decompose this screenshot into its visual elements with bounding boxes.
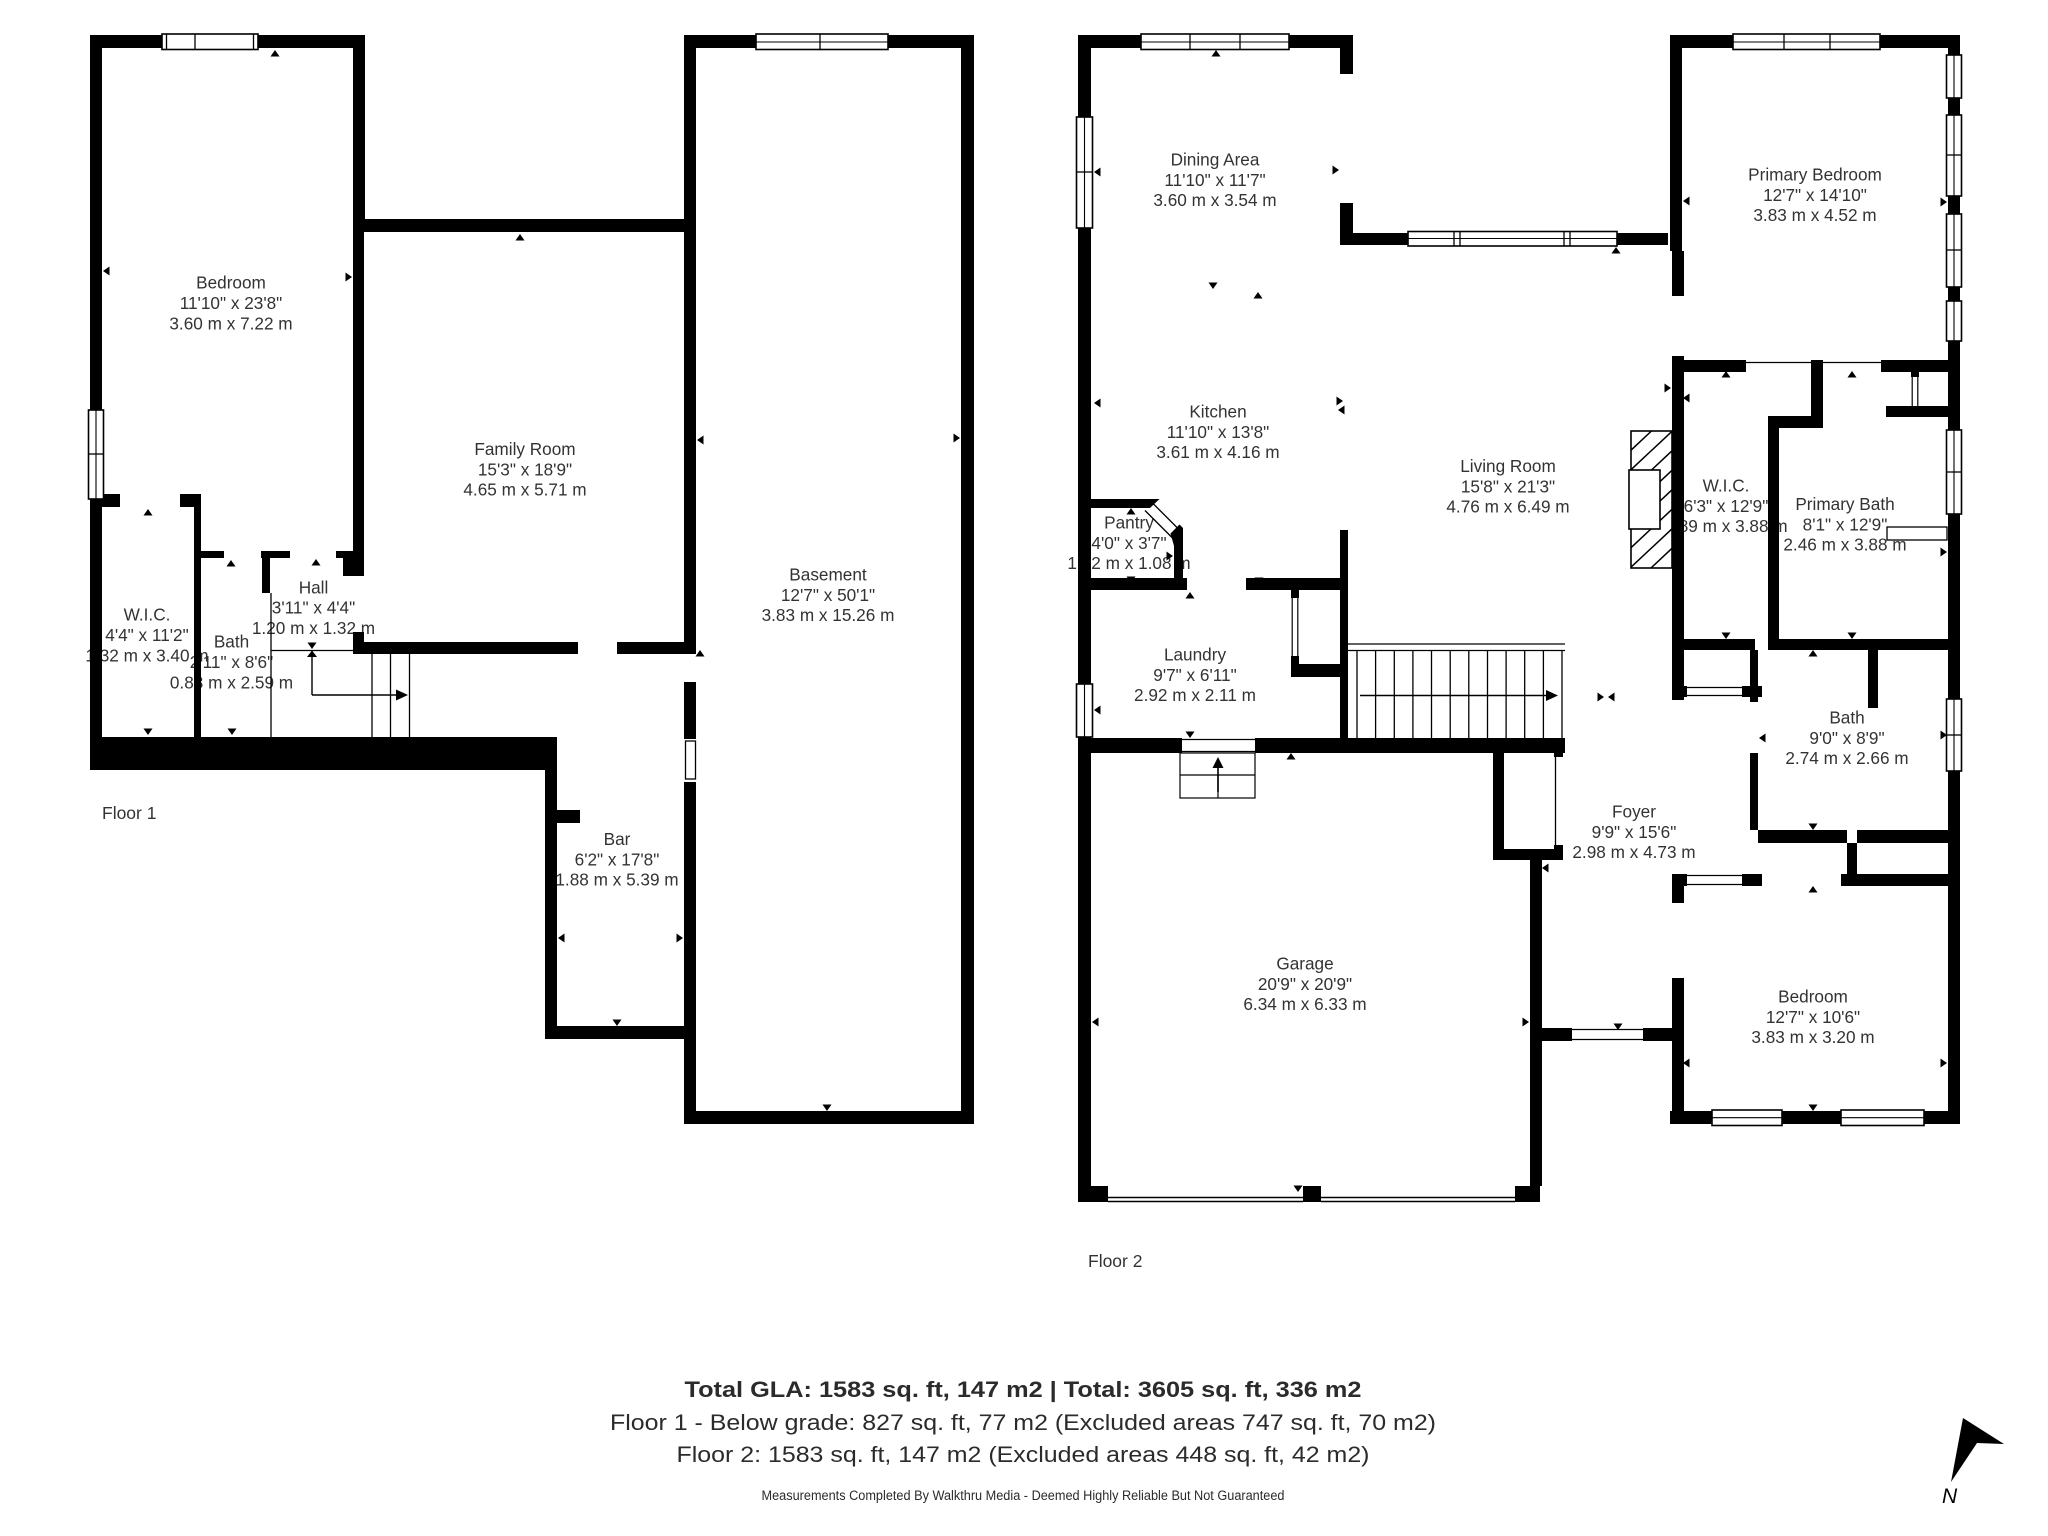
svg-text:Primary Bath: Primary Bath: [1795, 494, 1894, 514]
svg-text:Foyer: Foyer: [1612, 802, 1656, 822]
svg-text:Total GLA: 1583 sq. ft, 147 m2: Total GLA: 1583 sq. ft, 147 m2 | Total: …: [685, 1377, 1362, 1402]
svg-text:2.98 m x 4.73 m: 2.98 m x 4.73 m: [1572, 842, 1695, 862]
svg-text:2.74 m x 2.66 m: 2.74 m x 2.66 m: [1785, 748, 1908, 768]
svg-text:0.83 m x 2.59 m: 0.83 m x 2.59 m: [170, 672, 293, 692]
svg-text:Bedroom: Bedroom: [196, 273, 266, 293]
svg-text:Bath: Bath: [1829, 708, 1864, 728]
svg-text:2'11" x 8'6": 2'11" x 8'6": [190, 652, 273, 672]
svg-text:11'10" x 13'8": 11'10" x 13'8": [1167, 422, 1270, 442]
svg-text:Primary Bedroom: Primary Bedroom: [1748, 165, 1882, 185]
svg-text:3.83 m x 15.26 m: 3.83 m x 15.26 m: [762, 605, 895, 625]
svg-text:3.83 m x 3.20 m: 3.83 m x 3.20 m: [1751, 1027, 1874, 1047]
svg-text:W.I.C.: W.I.C.: [124, 605, 171, 625]
svg-text:3.60 m x 3.54 m: 3.60 m x 3.54 m: [1153, 190, 1276, 210]
svg-text:Basement: Basement: [789, 565, 867, 585]
svg-text:Bar: Bar: [604, 829, 631, 849]
svg-text:3.61 m x 4.16 m: 3.61 m x 4.16 m: [1156, 442, 1279, 462]
svg-text:1.88 m x 5.39 m: 1.88 m x 5.39 m: [555, 870, 678, 890]
svg-text:12'7" x 14'10": 12'7" x 14'10": [1763, 185, 1867, 205]
svg-text:Floor 2: Floor 2: [1088, 1251, 1142, 1271]
svg-text:11'10" x 23'8": 11'10" x 23'8": [180, 293, 283, 313]
svg-text:9'9" x 15'6": 9'9" x 15'6": [1592, 822, 1677, 842]
svg-text:6'2" x 17'8": 6'2" x 17'8": [575, 849, 660, 869]
svg-text:4.76 m x 6.49 m: 4.76 m x 6.49 m: [1446, 497, 1569, 517]
svg-text:9'7" x 6'11": 9'7" x 6'11": [1153, 665, 1236, 685]
svg-text:3'11" x 4'4": 3'11" x 4'4": [272, 598, 355, 618]
svg-text:Kitchen: Kitchen: [1189, 402, 1246, 422]
svg-text:Bedroom: Bedroom: [1778, 987, 1848, 1007]
svg-text:15'8" x 21'3": 15'8" x 21'3": [1461, 476, 1555, 496]
svg-text:8'1" x 12'9": 8'1" x 12'9": [1803, 514, 1888, 534]
svg-text:2.92 m x 2.11 m: 2.92 m x 2.11 m: [1134, 685, 1256, 705]
svg-text:Family Room: Family Room: [474, 439, 575, 459]
svg-text:15'3" x 18'9": 15'3" x 18'9": [478, 459, 572, 479]
svg-text:Floor 1 - Below grade: 827 sq.: Floor 1 - Below grade: 827 sq. ft, 77 m2…: [610, 1410, 1436, 1435]
svg-text:3.83 m x 4.52 m: 3.83 m x 4.52 m: [1753, 205, 1876, 225]
svg-text:6'3" x 12'9": 6'3" x 12'9": [1684, 496, 1769, 516]
svg-text:12'7" x 10'6": 12'7" x 10'6": [1766, 1007, 1860, 1027]
svg-text:W.I.C.: W.I.C.: [1703, 476, 1750, 496]
svg-text:N: N: [1942, 1485, 1958, 1508]
svg-text:Floor 2: 1583 sq. ft, 147 m2 (: Floor 2: 1583 sq. ft, 147 m2 (Excluded a…: [677, 1442, 1370, 1467]
svg-text:12'7" x 50'1": 12'7" x 50'1": [781, 585, 875, 605]
svg-text:Floor 1: Floor 1: [102, 803, 156, 823]
svg-text:Laundry: Laundry: [1164, 645, 1227, 665]
svg-text:Garage: Garage: [1276, 954, 1333, 974]
svg-text:9'0" x 8'9": 9'0" x 8'9": [1809, 728, 1884, 748]
svg-text:Pantry: Pantry: [1104, 513, 1154, 533]
svg-text:Hall: Hall: [299, 577, 329, 597]
svg-text:Dining Area: Dining Area: [1171, 150, 1260, 170]
svg-text:11'10" x 11'7": 11'10" x 11'7": [1164, 170, 1265, 190]
svg-text:Living Room: Living Room: [1460, 456, 1556, 476]
svg-text:Measurements Completed By Walk: Measurements Completed By Walkthru Media…: [762, 1488, 1285, 1503]
svg-text:4'4" x 11'2": 4'4" x 11'2": [105, 625, 188, 645]
svg-text:4'0" x 3'7": 4'0" x 3'7": [1091, 533, 1166, 553]
svg-text:4.65 m x 5.71 m: 4.65 m x 5.71 m: [463, 480, 586, 500]
svg-text:3.60 m x 7.22 m: 3.60 m x 7.22 m: [169, 313, 292, 333]
svg-text:6.34 m x 6.33 m: 6.34 m x 6.33 m: [1243, 994, 1366, 1014]
svg-text:20'9" x 20'9": 20'9" x 20'9": [1258, 974, 1352, 994]
svg-text:Bath: Bath: [214, 632, 249, 652]
